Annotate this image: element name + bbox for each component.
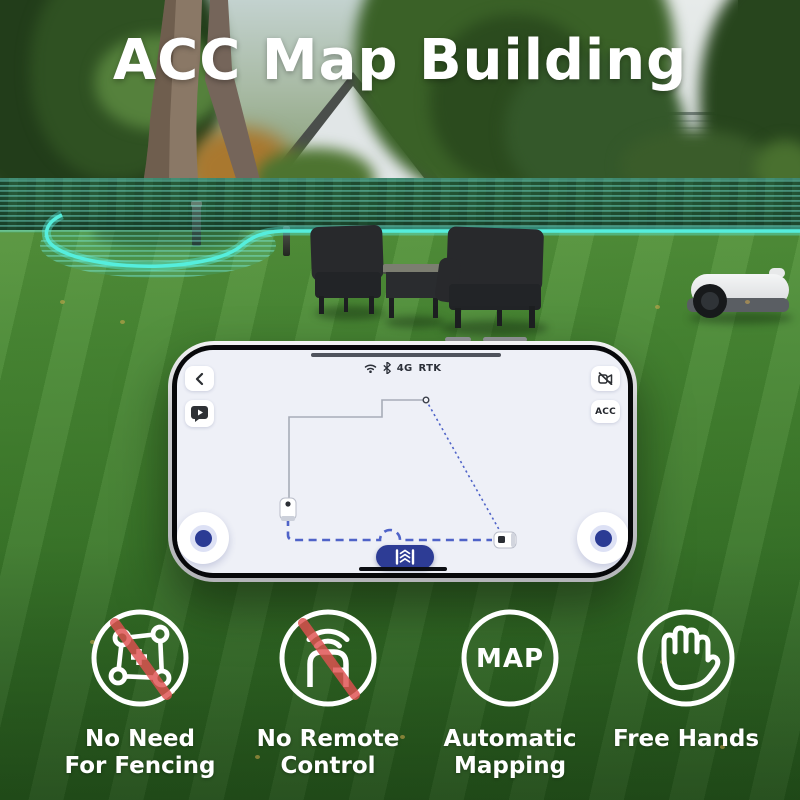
feature-label: No Remote Control: [228, 726, 428, 780]
joystick-left[interactable]: [177, 512, 229, 564]
camera-off-icon: [598, 372, 613, 385]
mower-marker-active: [494, 532, 516, 548]
joystick-ring: [190, 525, 217, 552]
feature-label: Automatic Mapping: [410, 726, 610, 780]
feature-no-fencing: No Need For Fencing: [40, 606, 240, 780]
no-fencing-icon: [88, 606, 192, 710]
bluetooth-icon: [383, 362, 391, 374]
garden-chair-left: [311, 226, 387, 318]
rtk-badge: RTK: [419, 363, 442, 374]
feature-label: Free Hands: [586, 726, 786, 753]
phone-screen: 4G RTK ACC: [177, 350, 628, 573]
video-bubble-icon: [190, 405, 209, 423]
garden-chair-right: [437, 228, 547, 330]
planned-path-dashed: [288, 518, 492, 540]
page-title: ACC Map Building: [0, 28, 800, 93]
leaf: [655, 305, 660, 309]
phone-mockup: 4G RTK ACC: [168, 341, 637, 582]
feature-automatic-mapping: MAP Automatic Mapping: [410, 606, 610, 780]
feature-no-remote: No Remote Control: [228, 606, 428, 780]
leaf: [745, 300, 750, 304]
leaf: [120, 320, 125, 324]
start-point-marker: [423, 397, 429, 403]
mapped-path: [289, 400, 426, 499]
map-icon-text: MAP: [476, 644, 544, 674]
status-bar: 4G RTK: [177, 362, 628, 374]
joystick-ring: [590, 525, 617, 552]
joystick-knob: [595, 530, 612, 547]
free-hands-icon: [634, 606, 738, 710]
map-icon: MAP: [458, 606, 562, 710]
video-tutorial-button[interactable]: [185, 400, 214, 427]
network-badge: 4G: [397, 363, 413, 374]
map-canvas[interactable]: [177, 350, 628, 573]
feature-label: No Need For Fencing: [40, 726, 240, 780]
planned-path-dotted: [426, 400, 501, 533]
mower-marker-dock: [280, 498, 296, 521]
drive-mode-icon: [394, 549, 416, 565]
acc-button[interactable]: ACC: [591, 400, 620, 423]
leaf: [60, 300, 65, 304]
joystick-knob: [195, 530, 212, 547]
no-remote-icon: [276, 606, 380, 710]
wifi-icon: [364, 363, 377, 373]
joystick-right[interactable]: [577, 512, 628, 564]
feature-free-hands: Free Hands: [586, 606, 786, 753]
marketing-page: ACC Map Building: [0, 0, 800, 800]
acc-button-label: ACC: [595, 407, 616, 417]
home-indicator[interactable]: [359, 567, 447, 571]
robot-mower: [681, 266, 797, 326]
drive-mode-button[interactable]: [376, 545, 434, 569]
camera-off-button[interactable]: [591, 366, 620, 391]
